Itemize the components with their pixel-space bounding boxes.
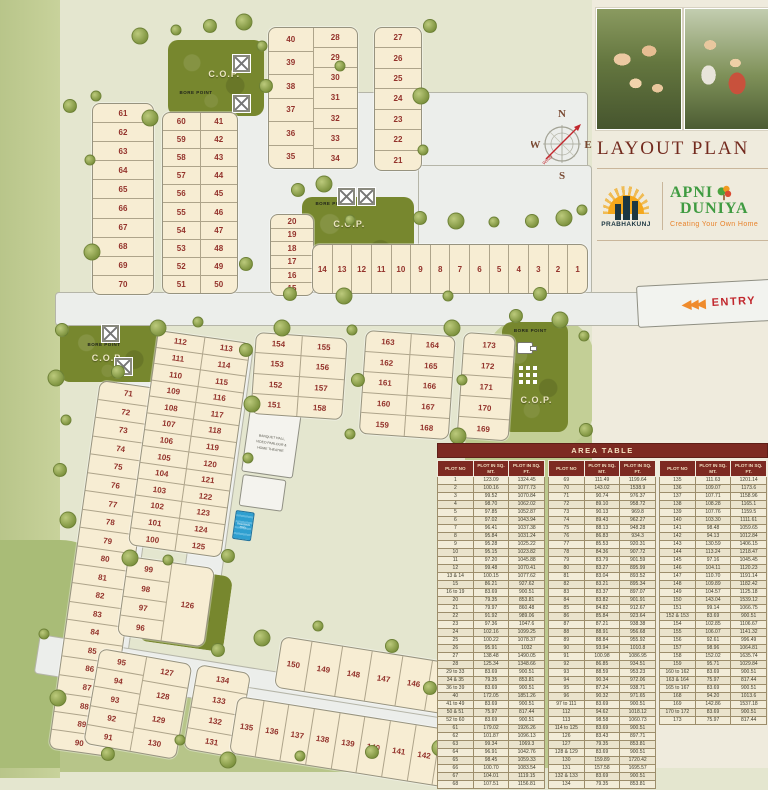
area-table-cell: 955.92	[620, 637, 656, 645]
area-table-cell: 895.99	[620, 565, 656, 573]
area-table-header: PLOT IN SQ. MT.	[695, 461, 731, 477]
area-table-cell: 1086.95	[620, 653, 656, 661]
area-table-cell: 86.83	[584, 533, 620, 541]
area-table-row: 149104.571125.18	[660, 589, 767, 597]
area-table-row: 14294.131012.84	[660, 533, 767, 541]
area-table-cell: 1158.96	[731, 493, 767, 501]
area-table-row: 130159.891720.42	[549, 757, 656, 765]
area-table-cell: 1012.84	[731, 533, 767, 541]
area-table-cell: 83.82	[584, 597, 620, 605]
area-table-cell: 159	[660, 661, 696, 669]
branding-block: PRABHAKUNJ APNI DUNIYA Creating Your Own…	[597, 176, 768, 236]
tree-icon	[48, 370, 65, 387]
plot-cell: 63	[93, 141, 153, 160]
area-table-cell: 1156.81	[509, 781, 545, 789]
area-table-cell: 83.69	[584, 725, 620, 733]
area-table-cell: 83.79	[584, 557, 620, 565]
bore-point-marker-icon	[102, 325, 119, 342]
plot-cell: 64	[93, 160, 153, 179]
area-table-cell: 1720.42	[620, 757, 656, 765]
area-table-cell: 107.51	[473, 781, 509, 789]
plot-column: 201918171615	[271, 215, 313, 295]
area-table-cell: 1851.26	[509, 693, 545, 701]
area-table-cell: 900.51	[731, 613, 767, 621]
area-table-cell: 9	[438, 541, 474, 549]
plot-cell: 65	[93, 179, 153, 198]
area-table-cell: 6	[438, 517, 474, 525]
area-table-row: 27138.481490.05	[438, 653, 545, 661]
tree-icon	[142, 110, 159, 127]
area-table-cell: 97.16	[695, 557, 731, 565]
plot-cell: 25	[375, 68, 421, 88]
area-table-cell: 83.69	[473, 717, 509, 725]
plot-block: 40393837363528293031323334	[268, 27, 358, 169]
area-table-row: 135111.631201.14	[660, 477, 767, 485]
area-table-cell: 104.11	[695, 565, 731, 573]
area-table-cell: 66	[438, 765, 474, 773]
tree-icon	[489, 217, 500, 228]
area-table-groups: PLOT NOPLOT IN SQ. MT.PLOT IN SQ. FT.112…	[437, 460, 768, 789]
photo-family-grass	[596, 8, 682, 130]
area-table-cell: 1125.18	[731, 589, 767, 597]
area-table-row: 8787.21938.38	[549, 621, 656, 629]
area-table-cell: 85.53	[584, 541, 620, 549]
area-table-cell: 69	[549, 477, 585, 485]
area-table-cell: 976.37	[620, 493, 656, 501]
area-table-cell: 154	[660, 621, 696, 629]
area-table-cell: 1539.12	[731, 597, 767, 605]
area-table-cell: 155	[660, 629, 696, 637]
area-table-cell: 900.51	[509, 717, 545, 725]
area-table-cell: 141	[660, 525, 696, 533]
area-table-row: 7686.83934.3	[549, 533, 656, 541]
area-table-cell: 853.81	[620, 781, 656, 789]
area-table-cell: 101.87	[473, 733, 509, 741]
tree-icon	[239, 257, 253, 271]
developer-name: PRABHAKUNJ	[601, 221, 651, 228]
area-table-cell: 958.72	[620, 501, 656, 509]
plot-block: 6059585756555453525141424344454647484950	[162, 112, 238, 294]
area-table-cell: 102.16	[473, 629, 509, 637]
plot-cell: 51	[163, 275, 200, 293]
entry-road: ◀◀◀ ENTRY	[636, 279, 768, 328]
area-table-cell: 152.02	[695, 653, 731, 661]
area-table-cell: 21	[438, 605, 474, 613]
area-table-cell: 168	[660, 693, 696, 701]
tree-icon	[259, 79, 273, 93]
tree-icon	[444, 320, 461, 337]
area-table-cell: 79.35	[584, 781, 620, 789]
area-table-cell: 1111.61	[731, 517, 767, 525]
plot-cell: 27	[375, 28, 421, 47]
tree-icon	[448, 213, 465, 230]
area-table-cell: 1077.62	[509, 573, 545, 581]
plot-cell: 57	[163, 166, 200, 184]
area-table-row: 143130.591406.15	[660, 541, 767, 549]
area-table-cell: 83.27	[584, 565, 620, 573]
area-table-cell: 128 & 129	[549, 749, 585, 757]
area-table-cell: 131	[549, 765, 585, 773]
area-table-cell: 90.34	[584, 677, 620, 685]
area-table-cell: 1120.23	[731, 565, 767, 573]
area-table-cell: 158	[660, 653, 696, 661]
area-table-cell: 971.65	[620, 693, 656, 701]
area-table-cell: 912.67	[620, 605, 656, 613]
area-table-cell: 74	[549, 517, 585, 525]
area-table-cell: 1106.67	[731, 621, 767, 629]
tree-icon	[257, 41, 268, 52]
area-table-cell: 173	[660, 717, 696, 725]
area-table-cell: 1099.25	[509, 629, 545, 637]
bore-point-label: BORE POINT	[514, 328, 547, 333]
area-table-cell: 87	[549, 621, 585, 629]
plot-cell: 35	[269, 145, 313, 169]
area-table-cell: 138	[660, 501, 696, 509]
tree-icon	[163, 555, 174, 566]
area-table-cell: 157	[660, 645, 696, 653]
area-table-cell: 1064.81	[731, 645, 767, 653]
area-table-row: 2695.911032	[438, 645, 545, 653]
tree-icon	[345, 429, 356, 440]
plot-cell: 3	[528, 245, 548, 293]
area-table-row: 7785.53920.31	[549, 541, 656, 549]
area-table-row: 91100.981086.95	[549, 653, 656, 661]
prabhakunj-logo: PRABHAKUNJ	[597, 184, 655, 228]
plot-cell: 12	[351, 245, 371, 293]
area-table-cell: 92	[549, 661, 585, 669]
area-table-group: PLOT NOPLOT IN SQ. MT.PLOT IN SQ. FT.135…	[659, 460, 767, 725]
area-table-row: 68107.511156.81	[438, 781, 545, 789]
area-table-cell: 71	[549, 493, 585, 501]
area-table-cell: 1695.57	[620, 765, 656, 773]
compass-s: S	[559, 170, 565, 181]
area-table-row: 2397.361047.6	[438, 621, 545, 629]
area-table-cell: 79.97	[473, 605, 509, 613]
area-table-cell: 1025.22	[509, 541, 545, 549]
area-table-cell: 98.48	[695, 525, 731, 533]
tree-icon	[175, 735, 186, 746]
area-table-cell: 900.51	[509, 701, 545, 709]
area-table-cell: 1070.41	[509, 565, 545, 573]
area-table-cell: 989.06	[509, 613, 545, 621]
plot-cell: 58	[163, 148, 200, 166]
area-table-row: 170 to 17283.69900.51	[660, 709, 767, 717]
tree-icon	[509, 309, 523, 323]
page-title: LAYOUT PLAN	[597, 138, 749, 160]
plot-cell: 14	[313, 245, 332, 293]
plot-cell: 1	[567, 245, 587, 293]
area-table-row: 597.851052.87	[438, 509, 545, 517]
area-table-cell: 90.13	[584, 509, 620, 517]
plot-cell: 31	[314, 87, 358, 107]
area-table-cell: 83.69	[473, 701, 509, 709]
area-table-row: 2179.97860.48	[438, 605, 545, 613]
plot-cell: 69	[93, 256, 153, 275]
tree-icon	[39, 629, 50, 640]
area-table-cell: 1078.37	[509, 637, 545, 645]
area-table-row: 165 to 16783.69900.51	[660, 685, 767, 693]
bore-point-marker-icon	[338, 188, 355, 205]
tree-icon	[291, 183, 305, 197]
area-table-cell: 96	[549, 693, 585, 701]
area-table-cell: 62	[438, 733, 474, 741]
compass-w: W	[531, 139, 541, 151]
area-table-cell: 80	[549, 565, 585, 573]
area-table-cell: 1066.75	[731, 605, 767, 613]
area-table-cell: 938.38	[620, 621, 656, 629]
area-table-row: 8584.82912.67	[549, 605, 656, 613]
area-table-cell: 853.81	[620, 741, 656, 749]
tree-icon	[579, 331, 590, 342]
plot-cell: 52	[163, 257, 200, 275]
area-table-row: 50 & 5175.97817.44	[438, 709, 545, 717]
area-table-cell: 900.51	[509, 685, 545, 693]
area-table-row: 8283.21895.34	[549, 581, 656, 589]
area-table-row: 69111.491199.64	[549, 477, 656, 485]
area-table-row: 16894.201013.6	[660, 693, 767, 701]
apni-duniya-logo: APNI DUNIYA Creating Your Own Home	[670, 185, 758, 228]
area-table-cell: 102.85	[695, 621, 731, 629]
area-table-cell: 83.69	[473, 669, 509, 677]
area-table-row: 1197.201045.88	[438, 557, 545, 565]
tree-icon	[85, 155, 96, 166]
area-table-cell: 817.44	[731, 677, 767, 685]
area-table-cell: 156	[660, 637, 696, 645]
area-table-row: 8988.84955.92	[549, 637, 656, 645]
layout-plan-page: C.O.P.BORE POINTC.O.P.BORE POINTC.O.P.BO…	[0, 0, 768, 768]
area-table-cell: 100.22	[473, 637, 509, 645]
area-table-row: 7390.13969.8	[549, 509, 656, 517]
area-table-cell: 1406.15	[731, 541, 767, 549]
area-table-cell: 107.76	[695, 509, 731, 517]
area-table-cell: 1018.12	[620, 709, 656, 717]
tree-icon	[457, 375, 468, 386]
area-table-cell: 8	[438, 533, 474, 541]
pool-label: SWIMMING POOL	[235, 522, 253, 530]
bore-point-marker-icon	[233, 55, 250, 72]
plot-cell: 40	[269, 28, 313, 51]
plot-cell: 36	[269, 121, 313, 145]
area-table-row: 146104.111120.23	[660, 565, 767, 573]
compass-e: E	[584, 139, 591, 151]
area-table-cell: 77	[549, 541, 585, 549]
plot-cell: 17	[271, 255, 313, 269]
plot-block: 201918171615	[270, 214, 314, 296]
area-table-cell: 900.51	[731, 669, 767, 677]
tree-icon	[203, 19, 217, 33]
plot-cell: 43	[201, 148, 238, 166]
tree-icon	[193, 317, 204, 328]
area-table-row: 152 & 15383.69900.51	[660, 613, 767, 621]
area-table-header: PLOT IN SQ. FT.	[509, 461, 545, 477]
plot-cell: 28	[314, 28, 358, 47]
area-table-row: 399.521070.84	[438, 493, 545, 501]
area-table-row: 895.841031.24	[438, 533, 545, 541]
area-table-cell: 99.34	[473, 741, 509, 749]
area-table-cell: 1926.26	[509, 725, 545, 733]
tree-icon	[525, 214, 539, 228]
sun-buildings-icon	[603, 184, 649, 220]
area-table-row: 11294.621018.12	[549, 709, 656, 717]
area-table-cell: 1096.13	[509, 733, 545, 741]
area-table-cell: 85.84	[584, 613, 620, 621]
area-table-cell: 109.07	[695, 485, 731, 493]
area-table-cell: 1538.9	[620, 485, 656, 493]
area-table-cell: 1077.73	[509, 485, 545, 493]
area-table-cell: 111.63	[695, 477, 731, 485]
area-table-cell: 28	[438, 661, 474, 669]
area-table-cell: 953.23	[620, 669, 656, 677]
area-table-cell: 136	[660, 485, 696, 493]
area-table-cell: 5	[438, 509, 474, 517]
area-table-cell: 87.24	[584, 685, 620, 693]
area-table-cell: 98.58	[584, 717, 620, 725]
area-table-cell: 83	[549, 589, 585, 597]
area-table-cell: 138.48	[473, 653, 509, 661]
bore-point-marker-icon	[233, 95, 250, 112]
plot-cell: 13	[332, 245, 352, 293]
area-table-cell: 1062.02	[509, 501, 545, 509]
area-table-cell: 97.85	[473, 509, 509, 517]
area-table-row: 40172.051851.26	[438, 693, 545, 701]
area-table-row: 2079.35853.81	[438, 597, 545, 605]
area-table-cell: 149	[660, 589, 696, 597]
tree-icon	[556, 210, 573, 227]
tree-icon	[577, 205, 588, 216]
area-table-cell: 163 & 164	[660, 677, 696, 685]
area-table-row: 155106.071141.32	[660, 629, 767, 637]
area-table-cell: 88.84	[584, 637, 620, 645]
area-table-row: 12683.43897.71	[549, 733, 656, 741]
area-table-cell: 26	[438, 645, 474, 653]
area-table-cell: 99.14	[695, 605, 731, 613]
area-table-cell: 901.91	[620, 597, 656, 605]
area-table-row: 150143.041539.12	[660, 597, 767, 605]
area-table-row: 138108.281165.1	[660, 501, 767, 509]
area-table-row: 7983.79901.59	[549, 557, 656, 565]
area-table-cell: 82	[549, 581, 585, 589]
area-table-row: 7884.36907.72	[549, 549, 656, 557]
project-word-2: DUNIYA	[680, 201, 749, 217]
tree-icon	[716, 185, 732, 201]
area-table-row: 154102.851106.67	[660, 621, 767, 629]
area-table-cell: 86	[549, 613, 585, 621]
plot-column: 61626364656667686970	[93, 104, 153, 294]
area-table-group: PLOT NOPLOT IN SQ. MT.PLOT IN SQ. FT.112…	[437, 460, 545, 789]
area-table-cell: 83.69	[584, 773, 620, 781]
plot-column: 41424344454647484950	[200, 113, 238, 293]
area-table-cell: 1032	[509, 645, 545, 653]
area-table-cell: 907.72	[620, 549, 656, 557]
area-table-cell: 103.30	[695, 517, 731, 525]
area-table-cell: 900.51	[620, 725, 656, 733]
area-table-cell: 1060.73	[620, 717, 656, 725]
area-table-cell: 90.74	[584, 493, 620, 501]
area-table-row: 15692.61996.49	[660, 637, 767, 645]
area-table-cell: 104.01	[473, 773, 509, 781]
brand-tagline: Creating Your Own Home	[670, 221, 758, 228]
plot-cell: 55	[163, 202, 200, 220]
area-table-row: 147110.701191.14	[660, 573, 767, 581]
area-table-cell: 81	[549, 573, 585, 581]
area-table-cell: 91.92	[473, 613, 509, 621]
area-table-cell: 1159.5	[731, 509, 767, 517]
area-table-cell: 95.84	[473, 533, 509, 541]
plot-cell: 37	[269, 98, 313, 122]
bore-point-label: BORE POINT	[180, 90, 213, 95]
area-table-cell: 40	[438, 693, 474, 701]
tree-icon	[243, 453, 254, 464]
area-table-cell: 923.64	[620, 613, 656, 621]
area-table-row: 6496.911042.76	[438, 749, 545, 757]
area-table-row: 24102.161099.25	[438, 629, 545, 637]
area-table-cell: 27	[438, 653, 474, 661]
area-table-cell: 145	[660, 557, 696, 565]
divider-line	[597, 168, 768, 169]
area-table-row: 14198.481059.65	[660, 525, 767, 533]
tree-icon	[274, 320, 291, 337]
area-table-cell: 86.21	[473, 581, 509, 589]
tree-icon	[84, 244, 101, 261]
banquet-hall-building: BANQUET HALL, VIDEO PARLOUR & HOME THEAT…	[241, 408, 301, 479]
area-table-cell: 900.51	[620, 701, 656, 709]
area-table-row: 41 to 4983.69900.51	[438, 701, 545, 709]
clubhouse-building	[239, 474, 287, 512]
area-table-cell: 130	[549, 757, 585, 765]
area-table-row: 8685.84923.64	[549, 613, 656, 621]
tree-icon	[345, 215, 356, 226]
area-table-cell: 1045.45	[731, 557, 767, 565]
area-table-cell: 900.51	[620, 749, 656, 757]
area-table-cell: 151	[660, 605, 696, 613]
area-table-cell: 860.48	[509, 605, 545, 613]
area-table-row: 28125.341348.66	[438, 661, 545, 669]
area-table-cell: 143.04	[695, 597, 731, 605]
area-table-row: 6598.451059.33	[438, 757, 545, 765]
area-table-cell: 75.97	[473, 709, 509, 717]
area-table-cell: 23	[438, 621, 474, 629]
area-table-cell: 142	[660, 533, 696, 541]
tree-icon	[239, 343, 253, 357]
area-table-cell: 948.28	[620, 525, 656, 533]
area-table-cell: 938.71	[620, 685, 656, 693]
tree-icon	[55, 323, 69, 337]
plot-cell: 21	[375, 150, 421, 170]
area-table-cell: 98.96	[695, 645, 731, 653]
area-table-cell: 50 & 51	[438, 709, 474, 717]
area-table-title: AREA TABLE	[437, 443, 768, 458]
plot-cell: 39	[269, 51, 313, 75]
tree-icon	[450, 428, 467, 445]
bore-point-label: BORE POINT	[88, 342, 121, 347]
area-table-row: 163 & 16475.97817.44	[660, 677, 767, 685]
area-table-row: 8888.91956.68	[549, 629, 656, 637]
area-table-cell: 83.21	[584, 581, 620, 589]
area-table-row: 139107.761159.5	[660, 509, 767, 517]
area-table-cell: 1324.45	[509, 477, 545, 485]
area-table-cell: 140	[660, 517, 696, 525]
area-table-cell: 1037.38	[509, 525, 545, 533]
area-table-cell: 91	[549, 653, 585, 661]
area-table-cell: 34 & 35	[438, 677, 474, 685]
area-table-cell: 1537.18	[731, 701, 767, 709]
area-table-cell: 170 to 172	[660, 709, 696, 717]
area-table-row: 1095.151023.82	[438, 549, 545, 557]
plot-column: 60595857565554535251	[163, 113, 200, 293]
cop-label: C.O.P.	[520, 395, 552, 405]
area-table-row: 498.701062.02	[438, 501, 545, 509]
area-table-cell: 93	[549, 669, 585, 677]
